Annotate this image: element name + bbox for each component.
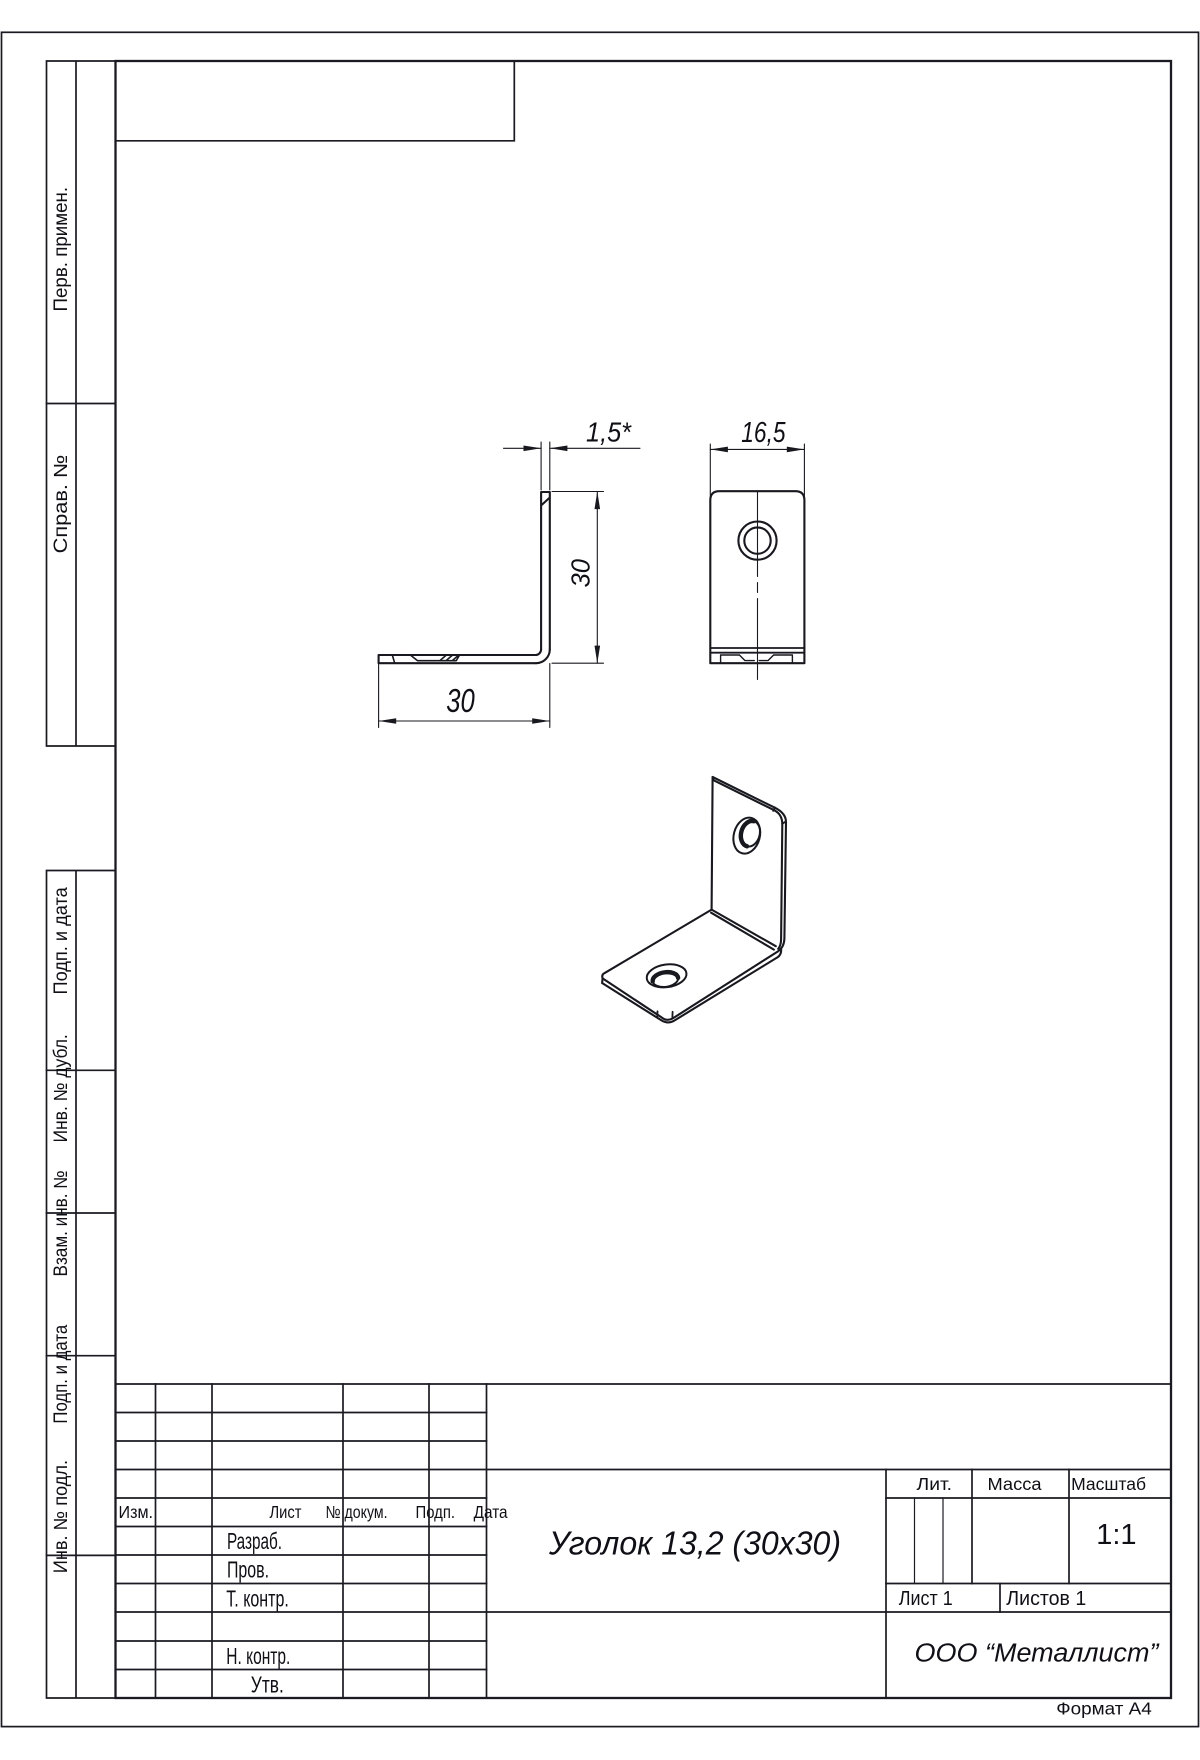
svg-text:1:1: 1:1 bbox=[1096, 1519, 1136, 1551]
svg-text:Подп.: Подп. bbox=[416, 1502, 456, 1522]
svg-text:Формат А4: Формат А4 bbox=[1056, 1699, 1152, 1719]
svg-text:30: 30 bbox=[446, 682, 475, 719]
svg-text:Т. контр.: Т. контр. bbox=[226, 1586, 288, 1612]
svg-text:ООО “Металлист”: ООО “Металлист” bbox=[915, 1640, 1161, 1668]
svg-text:Лит.: Лит. bbox=[917, 1474, 953, 1494]
svg-text:Утв.: Утв. bbox=[251, 1671, 284, 1697]
svg-text:Подп. и дата: Подп. и дата bbox=[51, 887, 72, 995]
svg-text:Справ. №: Справ. № bbox=[51, 455, 72, 554]
svg-text:Инв. № дубл.: Инв. № дубл. bbox=[51, 1034, 72, 1142]
svg-text:Масса: Масса bbox=[988, 1474, 1042, 1494]
svg-text:Лист: Лист bbox=[270, 1502, 302, 1522]
svg-text:Дата: Дата bbox=[474, 1502, 508, 1522]
svg-text:Листов 1: Листов 1 bbox=[1006, 1587, 1086, 1610]
svg-text:Масштаб: Масштаб bbox=[1071, 1474, 1146, 1494]
svg-text:Пров.: Пров. bbox=[227, 1557, 269, 1583]
svg-text:16,5: 16,5 bbox=[741, 417, 786, 449]
svg-text:Подп. и дата: Подп. и дата bbox=[51, 1324, 72, 1423]
svg-text:Изм.: Изм. bbox=[119, 1502, 154, 1522]
svg-text:Н. контр.: Н. контр. bbox=[226, 1643, 290, 1669]
svg-text:Разраб.: Разраб. bbox=[227, 1528, 282, 1554]
svg-text:Перв. примен.: Перв. примен. bbox=[51, 187, 72, 312]
svg-text:№ докум.: № докум. bbox=[326, 1502, 388, 1522]
svg-text:1,5*: 1,5* bbox=[586, 417, 632, 448]
svg-text:Взам. инв. №: Взам. инв. № bbox=[51, 1170, 72, 1276]
svg-text:Уголок 13,2 (30х30): Уголок 13,2 (30х30) bbox=[548, 1526, 841, 1563]
svg-text:Лист 1: Лист 1 bbox=[899, 1587, 953, 1610]
svg-text:30: 30 bbox=[566, 559, 596, 588]
svg-text:Инв. № подл.: Инв. № подл. bbox=[51, 1460, 72, 1573]
